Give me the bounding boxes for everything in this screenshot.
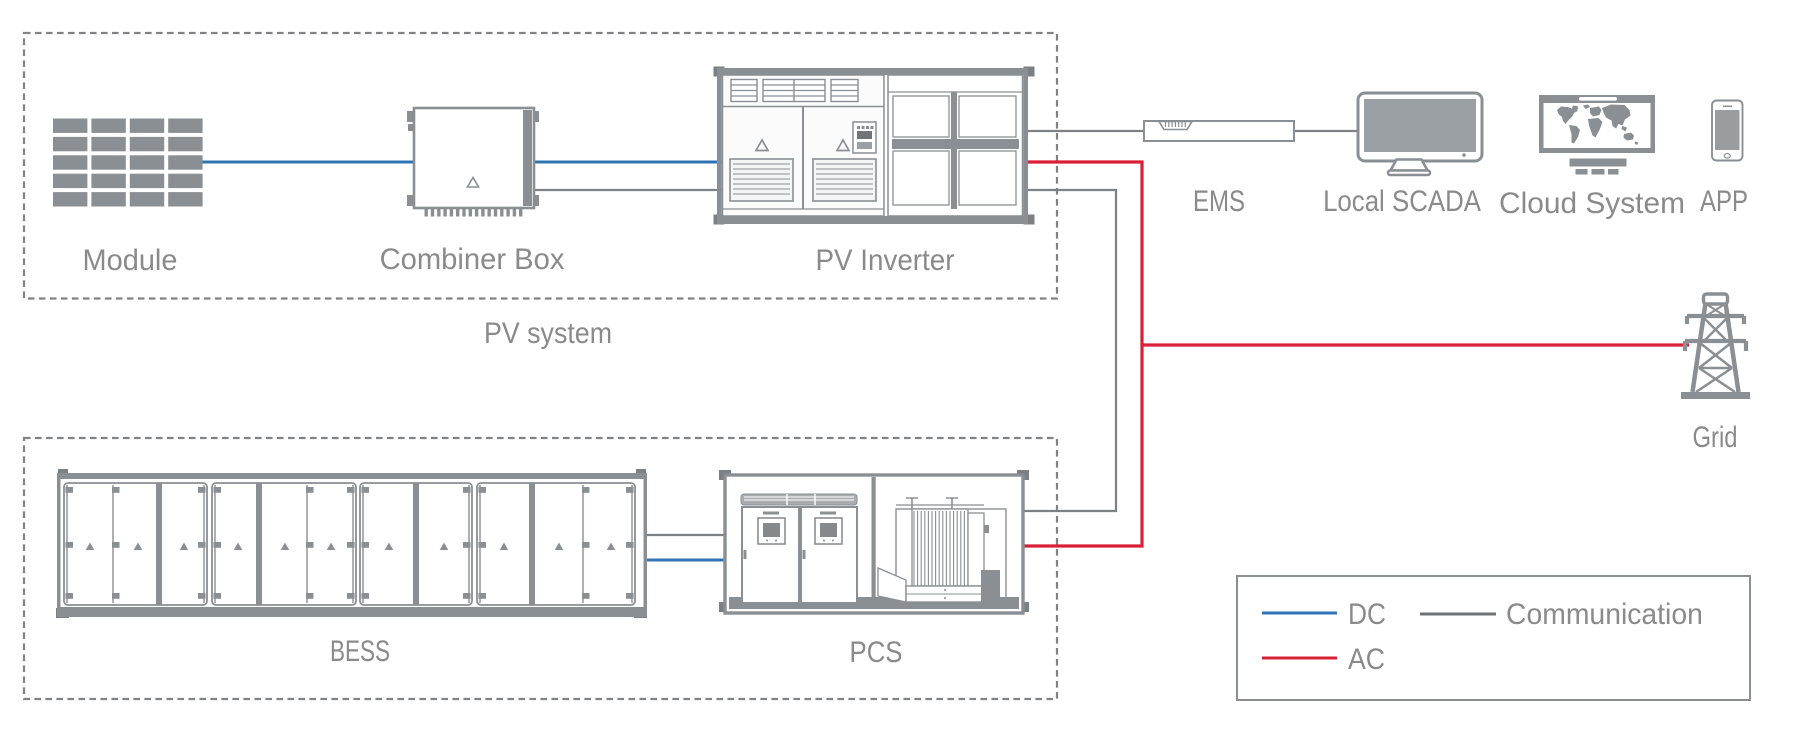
svg-text:Combiner Box: Combiner Box: [380, 243, 565, 276]
svg-text:Grid: Grid: [1693, 419, 1738, 453]
svg-text:AC: AC: [1348, 643, 1385, 677]
svg-text:Module: Module: [83, 244, 178, 278]
svg-text:BESS: BESS: [330, 634, 390, 668]
svg-text:PCS: PCS: [850, 635, 903, 668]
svg-text:Local SCADA: Local SCADA: [1323, 184, 1481, 217]
svg-text:PV system: PV system: [484, 317, 612, 351]
svg-text:Communication: Communication: [1506, 598, 1703, 631]
svg-text:DC: DC: [1348, 596, 1386, 630]
svg-text:EMS: EMS: [1193, 183, 1245, 217]
svg-text:Cloud System: Cloud System: [1499, 187, 1685, 220]
svg-text:PV Inverter: PV Inverter: [816, 244, 955, 277]
svg-text:APP: APP: [1700, 183, 1748, 217]
